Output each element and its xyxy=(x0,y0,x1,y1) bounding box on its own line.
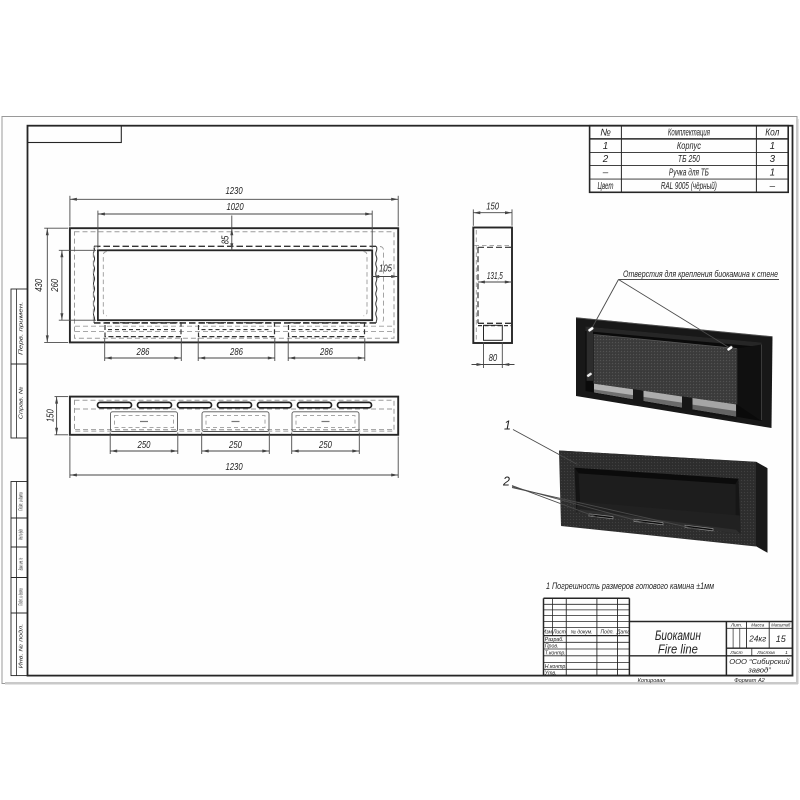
svg-text:Копировал: Копировал xyxy=(638,678,667,684)
svg-text:1 Погрешность размеров готовог: 1 Погрешность размеров готового камина ±… xyxy=(546,581,714,591)
svg-text:Изм.: Изм. xyxy=(543,630,554,636)
svg-text:RAL 9005 (чёрный): RAL 9005 (чёрный) xyxy=(661,181,717,192)
svg-text:Т.контр.: Т.контр. xyxy=(545,650,566,656)
svg-text:2: 2 xyxy=(602,154,609,165)
svg-text:–: – xyxy=(769,181,776,192)
svg-text:Подп. и дата: Подп. и дата xyxy=(19,492,25,511)
svg-text:№ докум.: № докум. xyxy=(571,630,593,636)
svg-text:1: 1 xyxy=(603,141,608,152)
svg-text:1230: 1230 xyxy=(225,462,243,473)
svg-text:1: 1 xyxy=(504,419,511,433)
svg-text:Подп.: Подп. xyxy=(601,630,614,636)
svg-text:Справ. №: Справ. № xyxy=(19,386,25,419)
svg-text:Разраб.: Разраб. xyxy=(545,637,564,643)
svg-text:завод”: завод” xyxy=(747,666,771,675)
svg-text:Взам. инв. №: Взам. инв. № xyxy=(19,558,25,571)
svg-text:Дата: Дата xyxy=(616,630,630,636)
svg-text:131,5: 131,5 xyxy=(487,271,503,282)
svg-text:286: 286 xyxy=(229,347,243,358)
svg-text:1020: 1020 xyxy=(226,202,244,213)
svg-text:Масса: Масса xyxy=(751,623,764,629)
svg-text:2: 2 xyxy=(502,475,510,489)
svg-text:Пров.: Пров. xyxy=(545,644,559,650)
svg-text:1: 1 xyxy=(770,141,775,152)
svg-text:Ручка для ТБ: Ручка для ТБ xyxy=(669,168,709,179)
svg-text:260: 260 xyxy=(50,278,61,292)
svg-text:Корпус: Корпус xyxy=(677,141,701,152)
svg-text:Подп. и дата: Подп. и дата xyxy=(19,588,25,606)
svg-text:1230: 1230 xyxy=(225,186,243,197)
svg-text:Комплектация: Комплектация xyxy=(668,127,710,138)
svg-text:250: 250 xyxy=(228,440,242,451)
svg-text:80: 80 xyxy=(489,353,498,364)
svg-text:Кол: Кол xyxy=(765,127,779,138)
svg-text:Лит.: Лит. xyxy=(730,623,742,629)
svg-text:150: 150 xyxy=(45,409,56,422)
svg-text:250: 250 xyxy=(137,440,151,451)
svg-text:Листов: Листов xyxy=(756,650,775,656)
svg-text:Лист: Лист xyxy=(552,630,566,636)
svg-text:Лист: Лист xyxy=(729,650,742,656)
svg-text:–: – xyxy=(602,168,609,179)
svg-text:Масштаб: Масштаб xyxy=(771,623,790,629)
svg-text:Инв. № подл.: Инв. № подл. xyxy=(19,624,25,669)
svg-text:15: 15 xyxy=(776,634,787,644)
svg-text:430: 430 xyxy=(34,279,45,292)
svg-text:1: 1 xyxy=(785,650,788,656)
svg-text:Н.контр.: Н.контр. xyxy=(545,664,567,670)
svg-text:ТБ 250: ТБ 250 xyxy=(678,154,700,165)
svg-text:24кг: 24кг xyxy=(748,635,766,644)
svg-text:Fire line: Fire line xyxy=(658,642,698,657)
svg-text:286: 286 xyxy=(319,347,333,358)
svg-text:Формат А2: Формат А2 xyxy=(734,678,765,684)
svg-text:250: 250 xyxy=(318,440,332,451)
svg-text:Утв.: Утв. xyxy=(545,671,557,677)
svg-text:105: 105 xyxy=(379,263,392,274)
svg-text:286: 286 xyxy=(136,347,150,358)
svg-text:85: 85 xyxy=(221,235,232,244)
svg-text:Инв. № дубл.: Инв. № дубл. xyxy=(19,529,25,540)
svg-text:150: 150 xyxy=(486,201,499,212)
svg-text:Перв. примен.: Перв. примен. xyxy=(19,302,25,355)
svg-text:1: 1 xyxy=(770,168,775,179)
svg-text:№: № xyxy=(600,127,611,138)
svg-text:Отверстия для крепления биокам: Отверстия для крепления биокамина к стен… xyxy=(623,268,778,279)
svg-text:3: 3 xyxy=(770,154,776,165)
svg-text:Цвет: Цвет xyxy=(598,181,614,192)
